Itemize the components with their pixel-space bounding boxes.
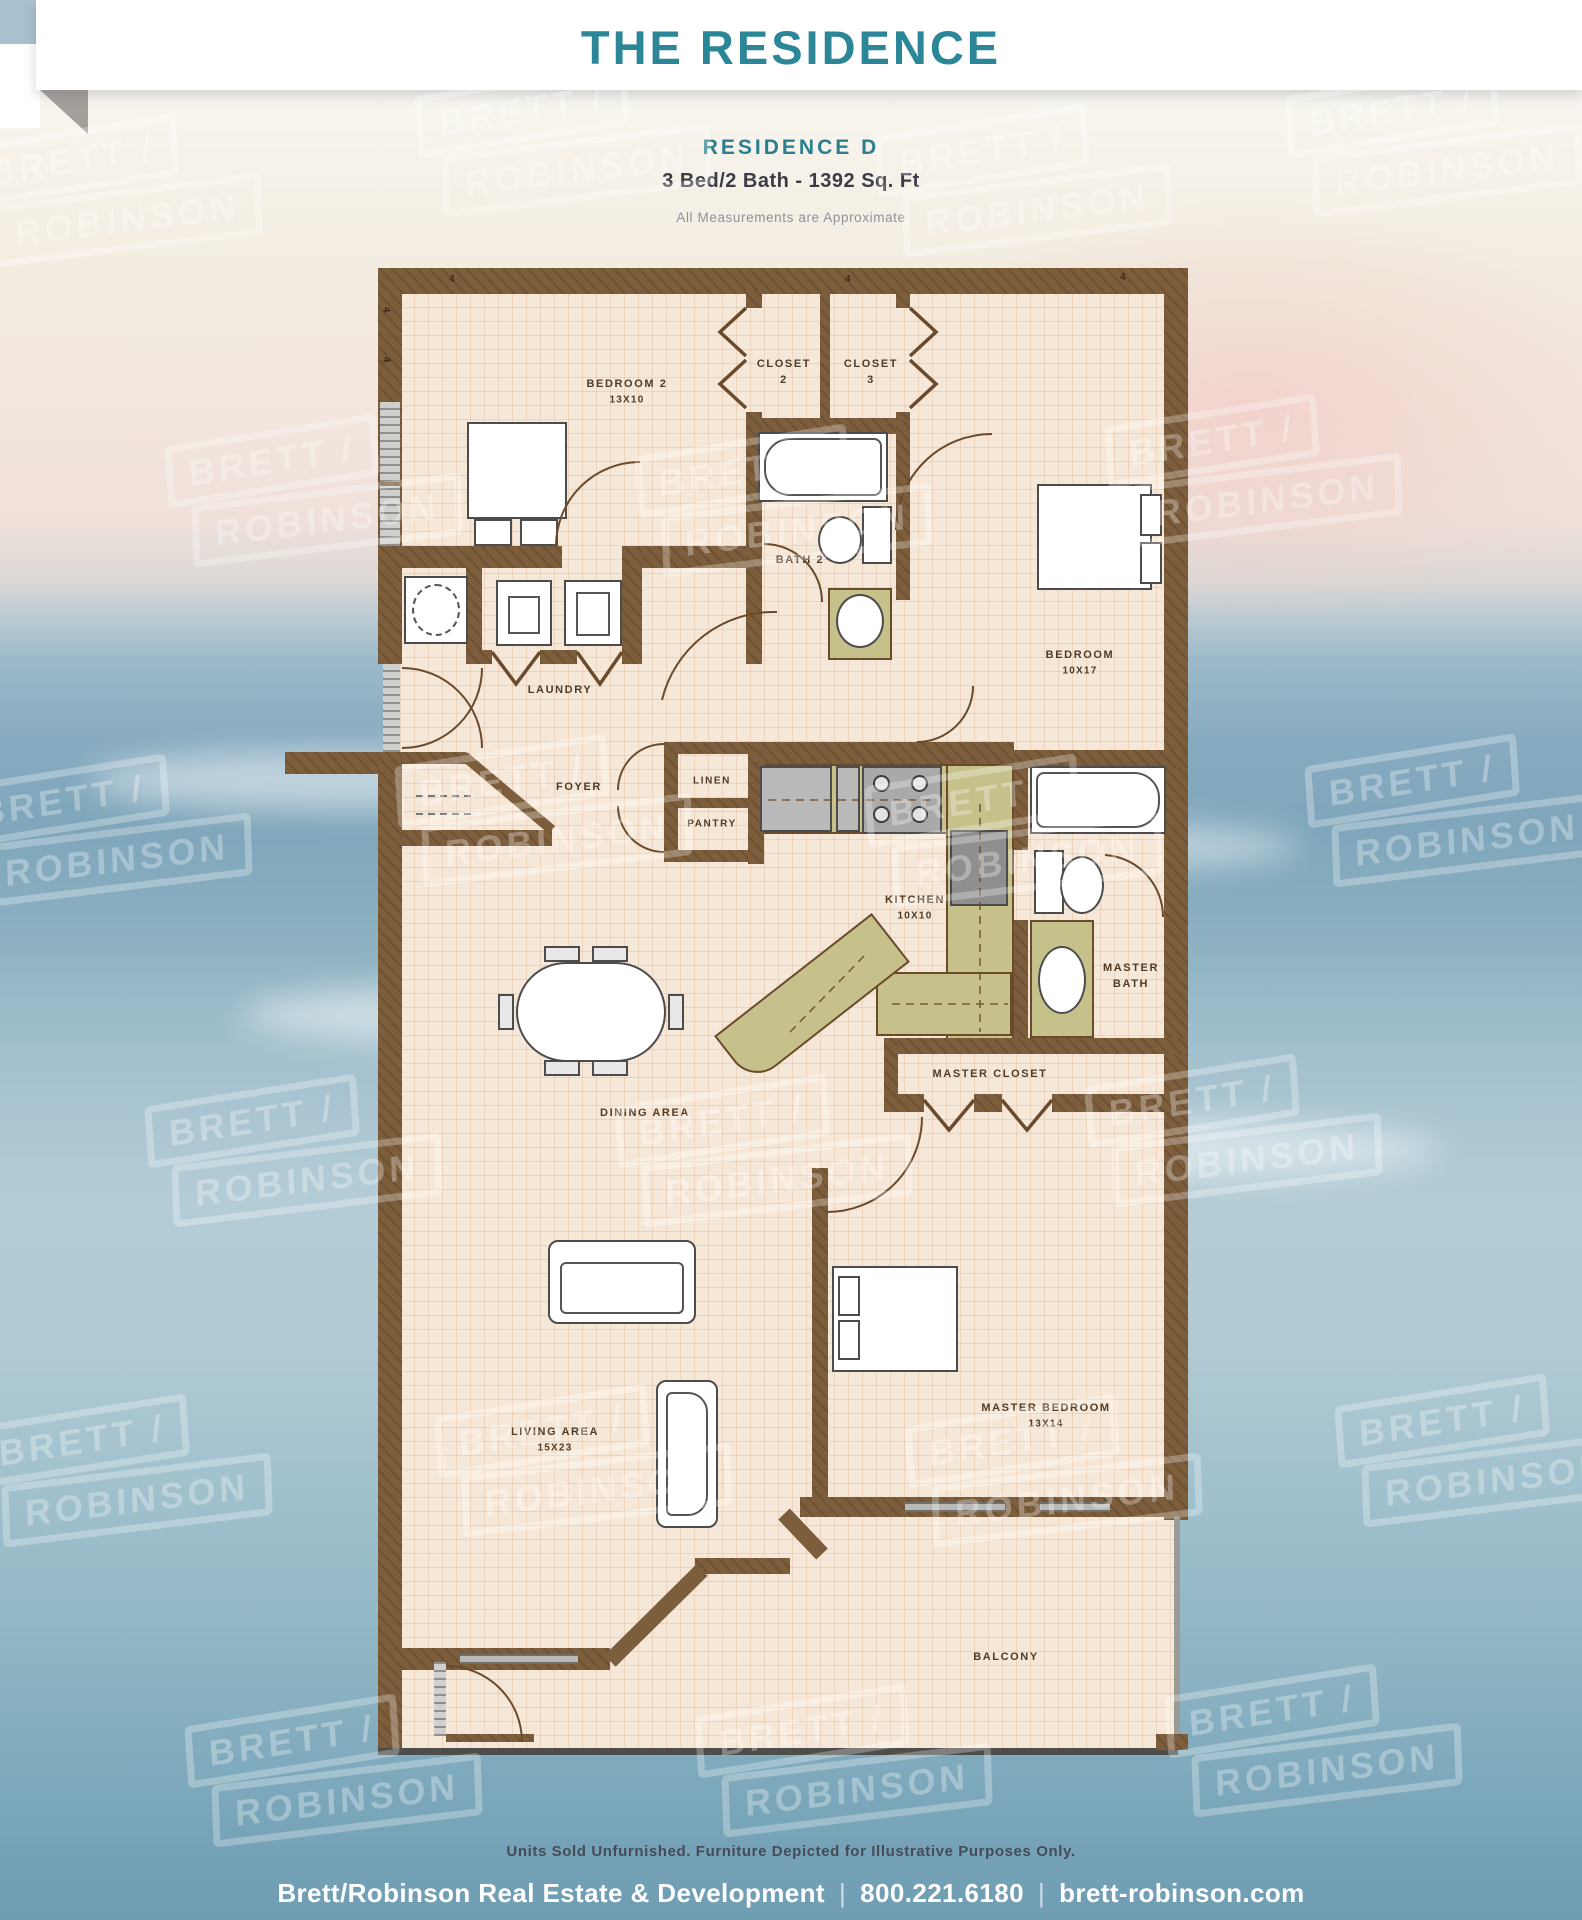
bedroom2-wall (402, 546, 562, 568)
balcony-door-track (434, 1662, 446, 1736)
pillow-icon (838, 1320, 860, 1360)
room-label-closet3-num: 3 (867, 374, 875, 386)
loveseat-seat (666, 1392, 708, 1516)
room-dims-living: 15X23 (538, 1443, 573, 1454)
entry-wall-stub (285, 752, 378, 774)
residence-name: RESIDENCE D (0, 136, 1582, 160)
pillow-icon (838, 1276, 860, 1316)
master-closet-wall (884, 1094, 924, 1112)
room-label-laundry: LAUNDRY (528, 684, 593, 696)
balcony-railing (378, 1748, 1178, 1755)
room-dims-kitchen: 10X10 (898, 911, 933, 922)
wall-right-exterior (1164, 268, 1188, 1520)
window (380, 486, 400, 546)
chair-icon (592, 1060, 628, 1076)
room-label-bedroom: BEDROOM (1046, 649, 1115, 661)
phone-number: 800.221.6180 (860, 1878, 1024, 1908)
separator: | (1024, 1878, 1059, 1908)
watermark-line2: ROBINSON (721, 1742, 992, 1837)
room-label-kitchen: KITCHEN (885, 894, 945, 906)
pantry-wall (664, 850, 760, 862)
chair-icon (544, 946, 580, 962)
dimension-mark: 4 (449, 274, 455, 285)
bath2-vanity (862, 506, 892, 564)
toilet-icon (836, 594, 884, 648)
foyer-closet-wall (402, 752, 466, 764)
company-name: Brett/Robinson Real Estate & Development (277, 1878, 825, 1908)
room-label-master-bath2: BATH (1113, 978, 1149, 990)
utility-tub-basin (412, 584, 460, 636)
bedroom2-wall (640, 546, 762, 568)
laundry-wall (622, 546, 642, 664)
room-label-master-bedroom: MASTER BEDROOM (981, 1402, 1110, 1414)
chair-icon (544, 1060, 580, 1076)
measurements-disclaimer: All Measurements are Approximate (0, 210, 1582, 225)
watermark-line1: BRETT / (0, 1393, 190, 1489)
room-dims-bedroom2: 13X10 (610, 395, 645, 406)
washer-door (508, 596, 540, 634)
sofa-seat (560, 1262, 684, 1314)
dimension-mark: 4 (380, 307, 391, 313)
master-closet-wall (974, 1094, 1002, 1112)
watermark-line2: ROBINSON (1361, 1432, 1582, 1527)
entry-threshold (383, 664, 400, 752)
watermark-line1: BRETT / (1304, 733, 1520, 829)
room-label-dining: DINING AREA (600, 1107, 690, 1119)
kitchen-island-bar (876, 972, 1012, 1036)
balcony-post (1156, 1734, 1188, 1750)
room-label-closet2-num: 2 (780, 374, 788, 386)
room-dims-master-bedroom: 13X14 (1029, 1419, 1064, 1430)
room-label-linen: LINEN (693, 776, 731, 787)
closet2-wall (746, 290, 762, 308)
linen-wall (664, 742, 760, 754)
room-label-closet3: CLOSET (844, 358, 898, 370)
counter-appliance (760, 766, 832, 832)
wall-top-exterior (378, 268, 1188, 294)
brand-watermark: BRETT / ROBINSON (1331, 1360, 1582, 1540)
room-label-master-closet: MASTER CLOSET (933, 1068, 1048, 1080)
watermark-line1: BRETT / (184, 1693, 400, 1789)
room-label-bath2: BATH 2 (776, 554, 825, 566)
bed-icon (467, 422, 567, 519)
page-title: THE RESIDENCE (0, 20, 1582, 75)
stove-burner (873, 775, 890, 792)
room-label-pantry: PANTRY (687, 819, 737, 830)
room-dims-bedroom: 10X17 (1063, 666, 1098, 677)
dimension-mark: 4 (845, 274, 851, 285)
master-bedroom-wall (812, 1168, 828, 1502)
website-link: brett-robinson.com (1059, 1878, 1305, 1908)
bathtub-basin (1036, 772, 1160, 828)
watermark-line1: BRETT / (0, 753, 170, 849)
window (380, 402, 400, 482)
separator: | (825, 1878, 860, 1908)
balcony-railing (1174, 1517, 1180, 1748)
brand-watermark: BRETT / ROBINSON (1301, 720, 1582, 900)
watermark-line2: ROBINSON (211, 1752, 482, 1847)
balcony-storage-wall (446, 1734, 534, 1742)
room-label-living: LIVING AREA (511, 1426, 599, 1438)
room-label-bedroom2: BEDROOM 2 (586, 378, 667, 390)
brand-watermark: BRETT / ROBINSON (1161, 1650, 1451, 1830)
watermark-line1: BRETT / (144, 1073, 360, 1169)
kitchen-wall (756, 742, 1014, 764)
pillow-icon (1140, 542, 1162, 584)
bath2-wall (896, 420, 910, 600)
balcony-wall (695, 1558, 790, 1574)
laundry-wall (466, 650, 492, 664)
bed-icon (1037, 484, 1152, 590)
watermark-line1: BRETT / (1164, 1663, 1380, 1759)
stove-burner (911, 775, 928, 792)
closet3-wall (896, 290, 910, 308)
brand-watermark: BRETT / ROBINSON (0, 740, 241, 920)
sink-icon (1038, 946, 1086, 1014)
pillow-icon (520, 519, 558, 546)
master-closet-wall (1052, 1094, 1188, 1112)
dimension-mark: 4 (380, 357, 391, 363)
room-label-foyer: FOYER (556, 781, 602, 793)
master-bath-wall (1014, 764, 1028, 850)
laundry-wall (540, 650, 577, 664)
chair-icon (498, 994, 514, 1030)
room-label-balcony: BALCONY (973, 1651, 1039, 1663)
bathtub-basin (764, 438, 882, 496)
room-label-master-bath: MASTER (1103, 962, 1159, 974)
banner-ribbon-fold (40, 90, 88, 134)
brand-watermark: BRETT / ROBINSON (0, 1380, 261, 1560)
laundry-wall (466, 546, 482, 662)
furnishing-disclaimer: Units Sold Unfurnished. Furniture Depict… (0, 1843, 1582, 1860)
dining-table-icon (516, 962, 666, 1062)
footer-contact-line: Brett/Robinson Real Estate & Development… (0, 1878, 1582, 1909)
closet-divider-wall (820, 294, 830, 430)
wall-left-exterior (378, 752, 402, 1748)
toilet-icon (818, 516, 862, 564)
stove-icon (862, 766, 942, 834)
master-bath-wall (1014, 920, 1028, 1054)
chair-icon (592, 946, 628, 962)
watermark-line2: ROBINSON (1, 1452, 272, 1547)
watermark-line2: ROBINSON (0, 812, 253, 907)
pillow-icon (1140, 494, 1162, 536)
dimension-mark: 4 (1120, 272, 1126, 283)
watermark-line2: ROBINSON (1191, 1722, 1462, 1817)
stove-burner (873, 806, 890, 823)
toilet-icon (1060, 856, 1104, 914)
chair-icon (668, 994, 684, 1030)
watermark-line1: BRETT / (1334, 1373, 1550, 1469)
sliding-glass-door (905, 1502, 1005, 1512)
room-label-closet2: CLOSET (757, 358, 811, 370)
residence-specs: 3 Bed/2 Bath - 1392 Sq. Ft (0, 170, 1582, 193)
sliding-glass-door (460, 1654, 578, 1664)
flyer-page: THE RESIDENCE RESIDENCE D 3 Bed/2 Bath -… (0, 0, 1582, 1920)
watermark-line2: ROBINSON (1331, 792, 1582, 887)
fridge-icon (950, 830, 1008, 906)
foyer-closet-wall (402, 830, 552, 846)
watermark-line1: BRETT / (164, 413, 380, 509)
sliding-glass-door (1040, 1502, 1110, 1512)
pillow-icon (474, 519, 512, 546)
master-closet-wall (884, 1038, 1188, 1054)
dryer-door (576, 592, 610, 636)
counter-sink (836, 766, 860, 832)
stove-burner (911, 806, 928, 823)
